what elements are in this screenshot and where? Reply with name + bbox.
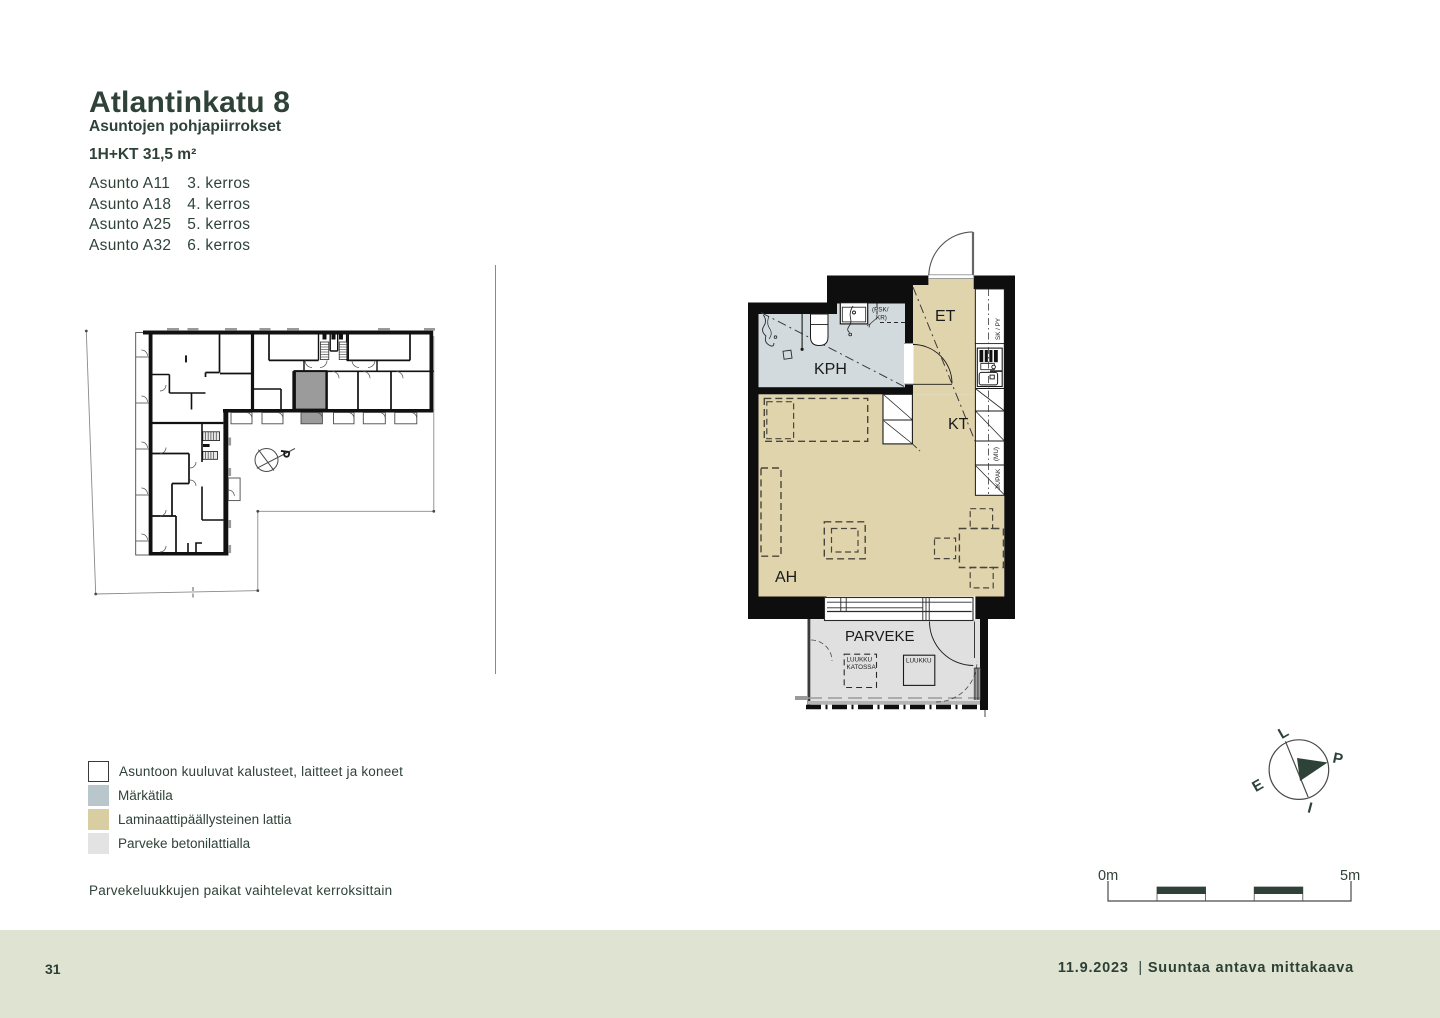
svg-text:KT: KT	[948, 416, 969, 433]
svg-text:(PSK/: (PSK/	[872, 307, 889, 314]
svg-text:AH: AH	[775, 569, 797, 586]
svg-text:LUUKKU: LUUKKU	[906, 658, 932, 665]
svg-text:P: P	[1331, 750, 1344, 769]
svg-text:KR): KR)	[876, 315, 887, 322]
svg-text:ET: ET	[935, 308, 956, 325]
svg-text:5m: 5m	[1340, 868, 1360, 884]
svg-text:LUUKKU: LUUKKU	[847, 657, 873, 664]
svg-text:E: E	[1249, 776, 1266, 796]
svg-text:0m: 0m	[1098, 868, 1118, 884]
svg-text:I: I	[1306, 799, 1314, 817]
svg-text:L: L	[1275, 723, 1291, 742]
svg-text:(MU): (MU)	[993, 447, 1000, 461]
svg-text:JK/PAK: JK/PAK	[995, 468, 1002, 490]
svg-text:KPH: KPH	[814, 361, 847, 378]
svg-text:PARVEKE: PARVEKE	[845, 628, 914, 645]
svg-text:KATOSSA: KATOSSA	[847, 664, 877, 671]
svg-text:SK / PY: SK / PY	[995, 317, 1002, 340]
